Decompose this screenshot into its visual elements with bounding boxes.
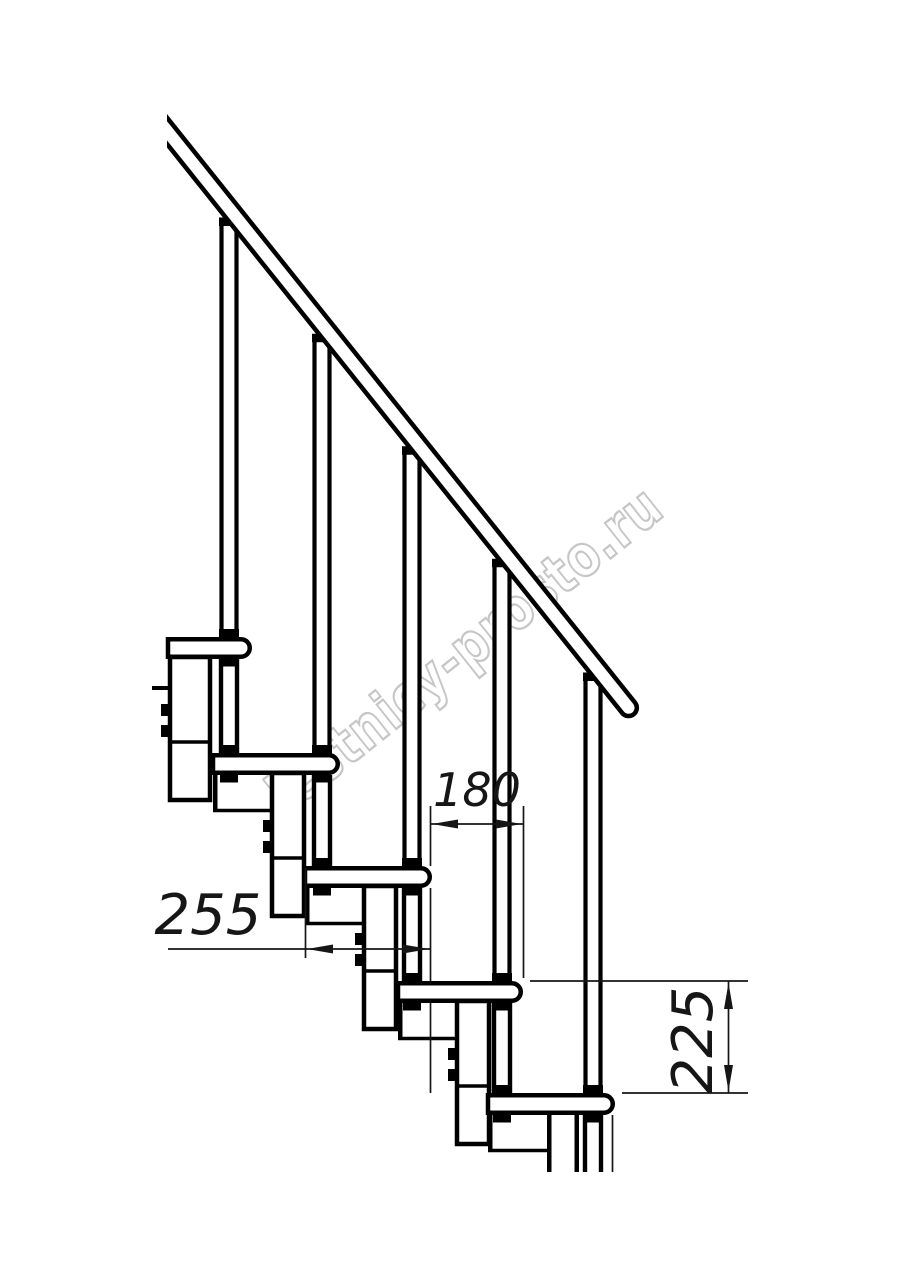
rod-fill (314, 775, 330, 866)
bolt-tab (263, 820, 274, 832)
bolt-tab (355, 933, 366, 945)
bolt-tab (355, 954, 366, 966)
rod-base-flange (492, 1085, 512, 1094)
baluster-tread-flange (219, 629, 239, 638)
dim-step-rise-label: 225 (661, 987, 726, 1094)
baluster-nut (403, 887, 421, 896)
staircase-technical-drawing: lestnicy-prosto.ru 180 255 225 (0, 0, 914, 1280)
arrowhead-left (432, 820, 458, 829)
rod-fill (404, 888, 420, 981)
tread-1 (168, 639, 250, 657)
rod-nut (403, 1002, 421, 1011)
rod-nut (220, 774, 238, 783)
baluster-nut (220, 658, 238, 667)
baluster-tread-flange (492, 973, 512, 982)
bolt-tab (161, 725, 172, 737)
support-box-4 (457, 1001, 489, 1144)
bolt-tab (263, 841, 274, 853)
support-box-3 (364, 886, 396, 1029)
baluster-fill (405, 454, 420, 866)
rod-nut (313, 887, 331, 896)
bolt-tab (448, 1069, 459, 1081)
drawing-page: lestnicy-prosto.ru 180 255 225 (0, 0, 914, 1280)
rod-fill (221, 659, 237, 753)
rod-nut (493, 1114, 511, 1123)
baluster-fill (222, 225, 237, 637)
bolt-tab (161, 704, 172, 716)
baluster-tread-flange (402, 858, 422, 867)
rod-fill (585, 1115, 601, 1172)
baluster-nut (493, 1002, 511, 1011)
baluster-tread-flange (312, 745, 332, 754)
rod-base-flange (312, 858, 332, 867)
tread-3 (305, 868, 430, 886)
tread-4 (398, 983, 521, 1001)
baluster-nut (584, 1114, 602, 1123)
arrowhead-left (307, 945, 333, 954)
support-box-1 (170, 657, 210, 800)
support-box-2 (272, 773, 304, 916)
rod-base-flange (402, 973, 422, 982)
baluster-nut (313, 774, 331, 783)
baluster-tread-flange (583, 1085, 603, 1094)
rod-fill (494, 1003, 510, 1093)
dim-step-run-label: 180 (433, 763, 521, 817)
baluster-fill (315, 342, 330, 753)
dim-tread-depth-label: 255 (155, 883, 262, 948)
bolt-tab (448, 1048, 459, 1060)
rod-base-flange (219, 745, 239, 754)
baluster-fill (586, 680, 601, 1093)
tread-2 (213, 755, 338, 773)
tread-5 (488, 1095, 613, 1113)
